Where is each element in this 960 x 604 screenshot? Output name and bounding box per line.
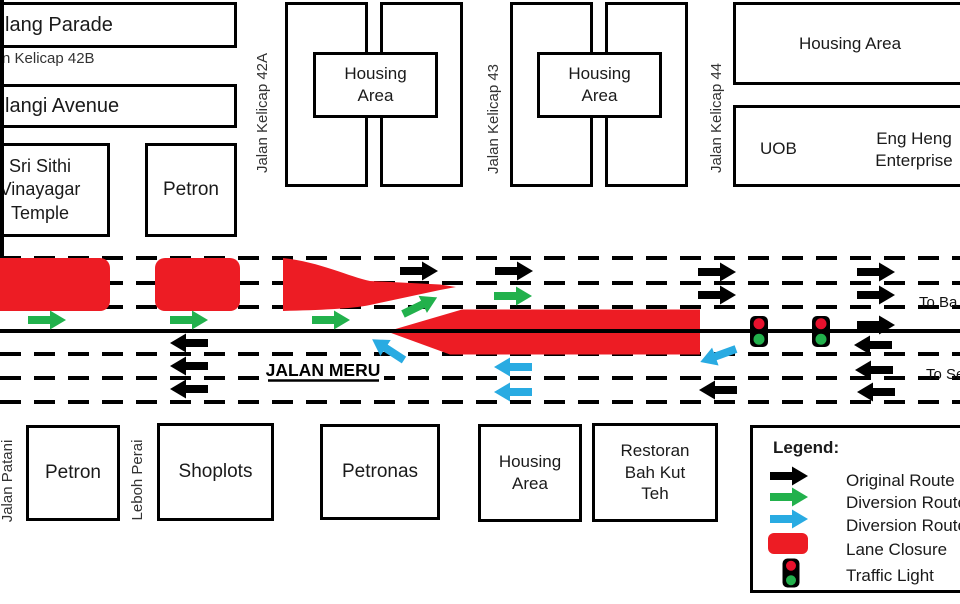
building-restoran-label: Restoran Bah Kut Teh [612, 440, 698, 505]
building-petron-south: Petron [26, 425, 120, 521]
original-route-arrow [855, 361, 893, 380]
clipped-box-edge [0, 0, 4, 258]
diversion-route-blue-arrow [494, 358, 532, 377]
original-route-arrow [170, 380, 208, 399]
road-name-jalan-meru: JALAN MERU [266, 360, 381, 380]
building-eng-heng-label: Eng Heng Enterprise [864, 128, 960, 172]
building-klang-parade-label: lang Parade [5, 14, 113, 37]
building-petronas-label: Petronas [342, 461, 418, 483]
original-route-arrow [857, 263, 895, 282]
building-pelangi-avenue: langi Avenue [0, 84, 237, 128]
original-route-arrow [170, 357, 208, 376]
lane-closure-taper [387, 310, 700, 355]
original-route-arrow [857, 383, 895, 402]
original-route-arrow [400, 262, 438, 281]
street-label-kelicap-43: Jalan Kelicap 43 [485, 49, 505, 189]
diversion-route-blue-arrow [494, 383, 532, 402]
traffic-diversion-diagram: lang Parade n Kelicap 42B langi Avenue S… [0, 0, 960, 604]
diversion-route-green-arrow [399, 289, 441, 323]
original-route-arrow [698, 263, 736, 282]
building-klang-parade: lang Parade [0, 2, 237, 48]
building-housing-area-1: Housing Area [313, 52, 438, 118]
traffic-light-body [750, 316, 768, 347]
diversion-route-green-arrow [170, 311, 208, 330]
building-shoplots: Shoplots [157, 423, 274, 521]
diversion-route-blue-arrow [367, 331, 409, 368]
building-housing-area-1-label: Housing Area [336, 63, 416, 107]
building-petron-north: Petron [145, 143, 237, 237]
legend: Legend: Original Route Diversion Route D… [750, 425, 960, 593]
building-restoran: Restoran Bah Kut Teh [592, 423, 718, 522]
building-housing-area-ne: Housing Area [733, 2, 960, 85]
legend-item-traffic-light: Traffic Light [846, 566, 934, 586]
street-label-kelicap-44: Jalan Kelicap 44 [708, 48, 728, 188]
traffic-light-green-lamp [754, 334, 765, 345]
legend-title: Legend: [773, 438, 839, 458]
traffic-light-body [812, 316, 830, 347]
original-route-arrow [170, 334, 208, 353]
building-petron-north-label: Petron [163, 179, 219, 201]
street-label-kelicap-42a: Jalan Kelicap 42A [254, 43, 274, 183]
lane-closure-area [155, 258, 240, 311]
destination-label-west: To Se [926, 366, 960, 383]
building-housing-area-ne-label: Housing Area [799, 34, 901, 54]
diversion-route-green-arrow [28, 311, 66, 330]
legend-item-original-route: Original Route [846, 471, 955, 491]
lane-closure-taper [283, 258, 456, 311]
diversion-route-blue-arrow [697, 340, 739, 371]
destination-label-east: To Ba [919, 294, 958, 311]
building-petronas: Petronas [320, 424, 440, 520]
original-route-arrow [857, 286, 895, 305]
traffic-light-green-lamp [816, 334, 827, 345]
original-route-arrow [698, 286, 736, 305]
diversion-route-green-arrow [494, 287, 532, 306]
diversion-route-green-arrow [312, 311, 350, 330]
building-uob-engheng: UOB Eng Heng Enterprise [733, 105, 960, 187]
original-route-arrow [495, 262, 533, 281]
building-uob-label: UOB [760, 139, 797, 159]
building-housing-area-s: Housing Area [478, 424, 582, 522]
building-temple-label: Sri Sithi Vinayagar Temple [0, 155, 88, 224]
building-housing-area-2-label: Housing Area [560, 63, 640, 107]
building-petron-south-label: Petron [45, 462, 101, 484]
building-pelangi-avenue-label: langi Avenue [5, 95, 119, 118]
traffic-light-red-lamp [816, 318, 827, 329]
legend-item-diversion-green: Diversion Route [846, 493, 960, 513]
original-route-arrow [854, 336, 892, 355]
road-name-backing [262, 358, 384, 381]
original-route-arrow [699, 381, 737, 400]
lane-closure-area [0, 258, 110, 311]
building-housing-area-s-label: Housing Area [490, 451, 570, 495]
traffic-light-red-lamp [754, 318, 765, 329]
legend-item-lane-closure: Lane Closure [846, 540, 947, 560]
legend-item-diversion-blue: Diversion Route [846, 516, 960, 536]
street-label-kelicap-42b: n Kelicap 42B [2, 50, 95, 67]
original-route-arrow [857, 316, 895, 335]
building-temple: Sri Sithi Vinayagar Temple [0, 143, 110, 237]
street-label-leboh-perai: Leboh Perai [129, 410, 149, 550]
building-housing-area-2: Housing Area [537, 52, 662, 118]
street-label-jalan-patani: Jalan Patani [0, 411, 19, 551]
building-shoplots-label: Shoplots [179, 461, 253, 483]
